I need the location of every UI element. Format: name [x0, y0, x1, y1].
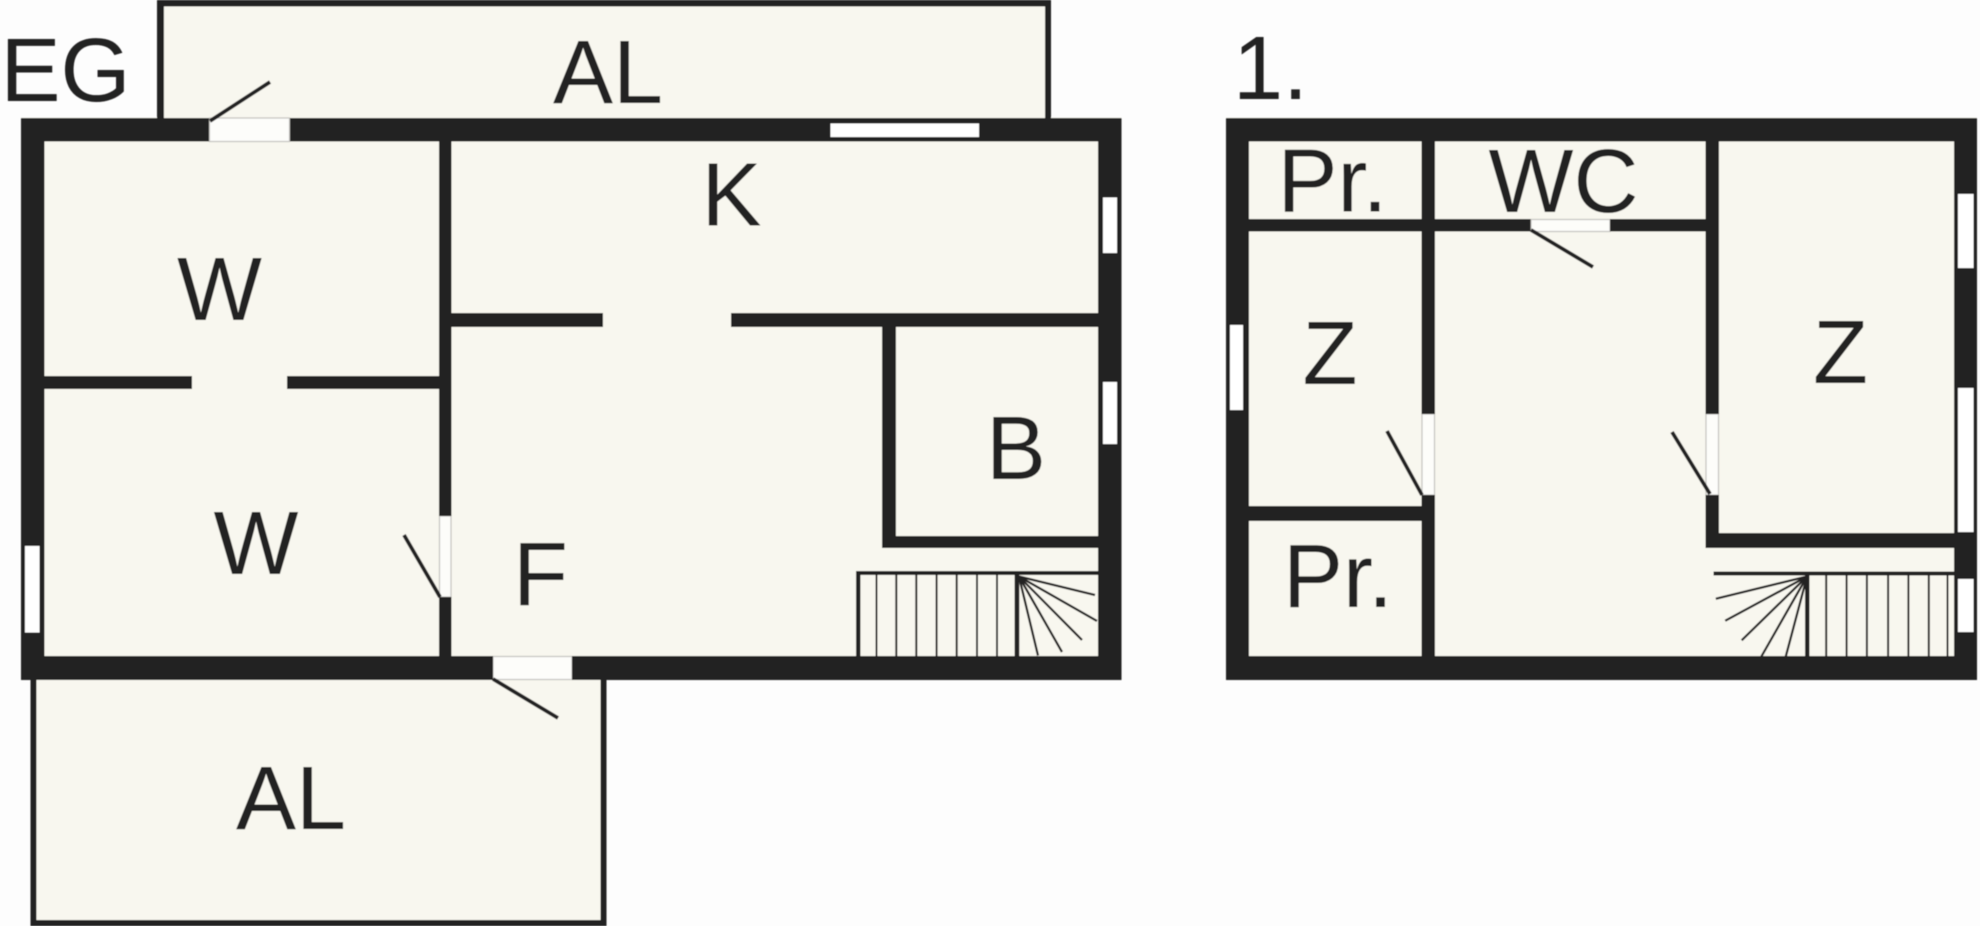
- svg-text:AL: AL: [553, 23, 663, 123]
- svg-text:W: W: [214, 494, 299, 594]
- svg-text:Pr.: Pr.: [1278, 132, 1388, 232]
- svg-text:WC: WC: [1489, 132, 1639, 232]
- svg-text:Z: Z: [1303, 304, 1358, 404]
- svg-text:Z: Z: [1813, 303, 1868, 403]
- svg-text:1.: 1.: [1233, 19, 1308, 119]
- svg-text:B: B: [986, 399, 1046, 499]
- svg-text:EG: EG: [1, 21, 131, 121]
- svg-text:K: K: [702, 146, 762, 246]
- svg-text:F: F: [513, 525, 568, 625]
- svg-text:W: W: [177, 240, 262, 340]
- svg-text:Pr.: Pr.: [1283, 527, 1393, 627]
- svg-text:AL: AL: [236, 749, 346, 849]
